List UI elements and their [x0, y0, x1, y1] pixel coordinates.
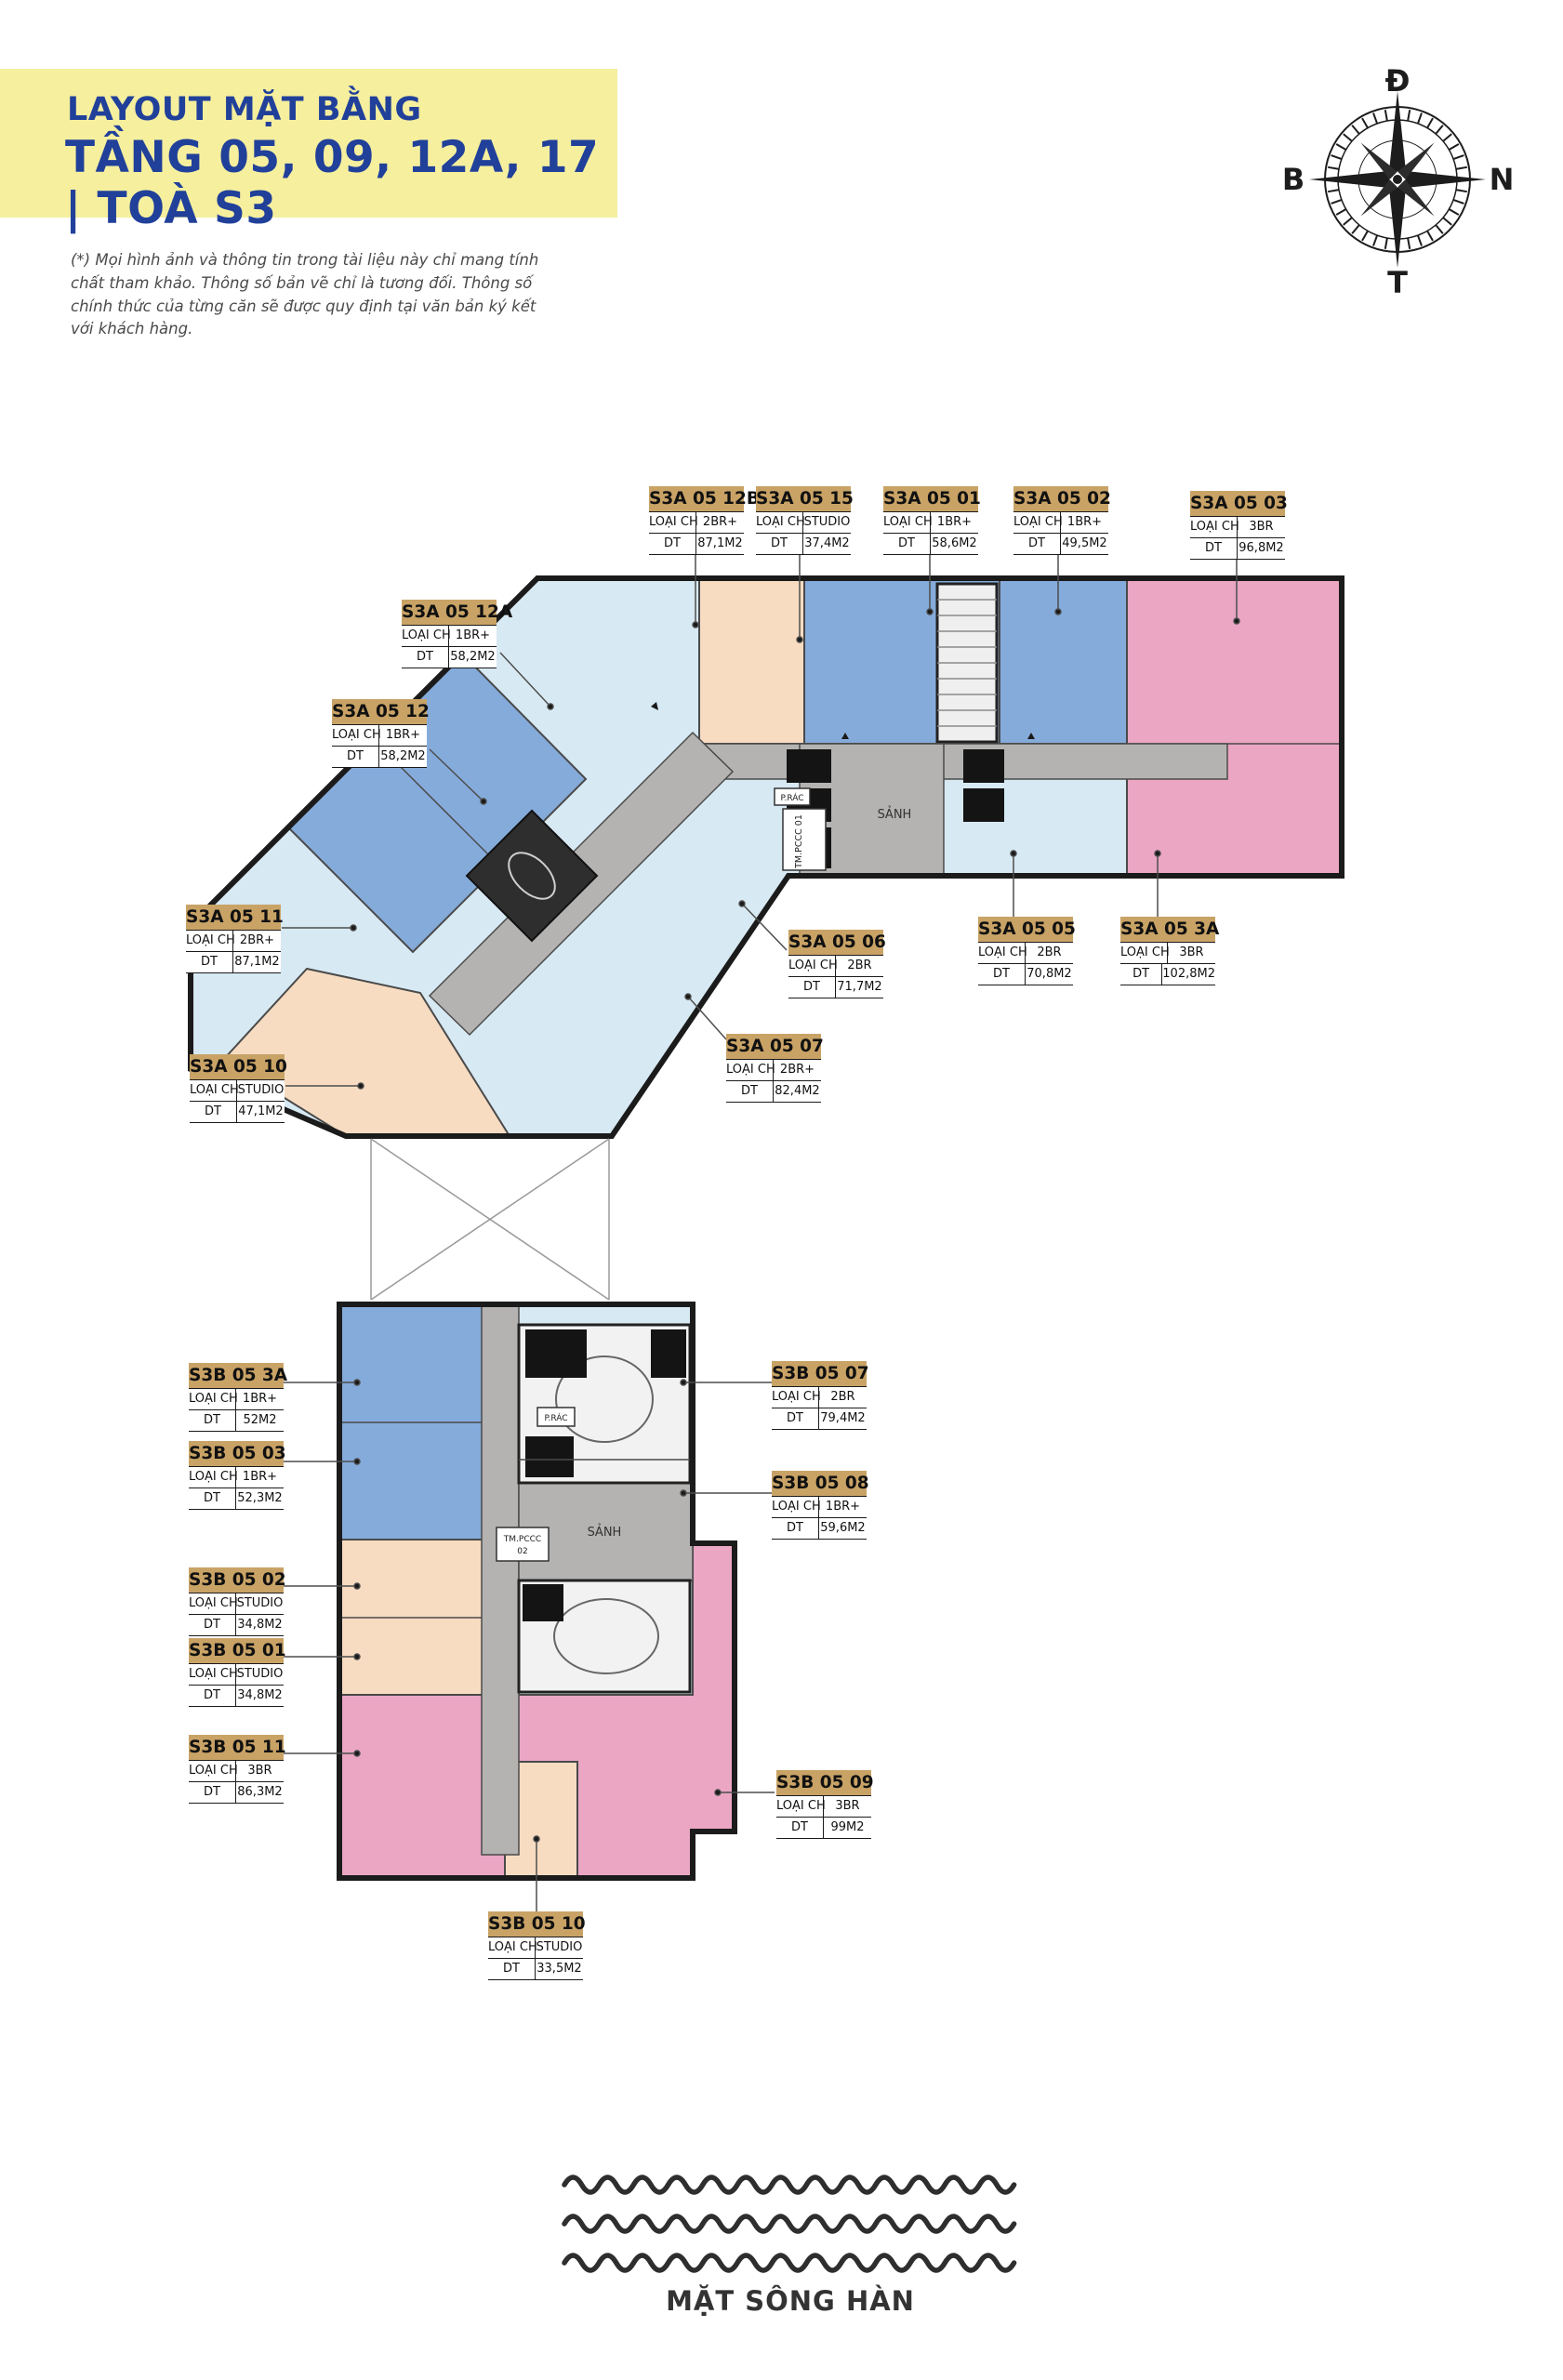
unit-area: 102,8M2: [1162, 964, 1215, 985]
type-field-label: LOẠI CH: [756, 512, 803, 533]
unit-area: 59,6M2: [819, 1518, 867, 1539]
unit-id: S3A 05 05: [978, 917, 1073, 942]
unit-label-s3b-05-01: S3B 05 01 LOẠI CHSTUDIO DT34,8M2: [189, 1638, 284, 1707]
unit-type: 1BR+: [449, 626, 497, 646]
unit-type: 1BR+: [1061, 512, 1108, 533]
unit-type: 2BR: [1026, 943, 1073, 963]
area-field-label: DT: [189, 1615, 236, 1635]
unit-area: 96,8M2: [1238, 538, 1285, 559]
unit-label-s3a-05-10: S3A 05 10 LOẠI CHSTUDIO DT47,1M2: [190, 1054, 285, 1123]
type-field-label: LOẠI CH: [772, 1387, 819, 1408]
unit-label-s3b-05-3a: S3B 05 3A LOẠI CH1BR+ DT52M2: [189, 1363, 284, 1432]
unit-area: 58,2M2: [379, 747, 427, 767]
type-field-label: LOẠI CH: [488, 1937, 536, 1958]
type-field-label: LOẠI CH: [190, 1080, 237, 1101]
unit-type: STUDIO: [237, 1080, 285, 1101]
unit-label-s3b-05-09: S3B 05 09 LOẠI CH3BR DT99M2: [776, 1770, 871, 1839]
s3b-lobby-label: SẢNH: [588, 1524, 622, 1540]
river-label: MẶT SÔNG HÀN: [564, 2285, 1016, 2317]
unit-type: STUDIO: [236, 1593, 284, 1614]
unit-area: 71,7M2: [836, 977, 883, 998]
area-field-label: DT: [776, 1818, 824, 1838]
unit-area: 99M2: [824, 1818, 871, 1838]
unit-id: S3A 05 03: [1190, 491, 1285, 516]
s3b-fire-room-label-line2: 02: [517, 1547, 527, 1556]
unit-id: S3B 05 07: [772, 1361, 867, 1386]
unit-area: 34,8M2: [236, 1615, 284, 1635]
unit-label-s3a-05-12a: S3A 05 12A LOẠI CH1BR+ DT58,2M2: [402, 600, 497, 668]
unit-type: 2BR: [819, 1387, 867, 1408]
unit-type: 2BR: [836, 956, 883, 976]
type-field-label: LOẠI CH: [776, 1796, 824, 1817]
unit-area: 70,8M2: [1026, 964, 1073, 985]
unit-type: STUDIO: [536, 1937, 583, 1958]
unit-label-s3a-05-12: S3A 05 12 LOẠI CH1BR+ DT58,2M2: [332, 699, 427, 768]
area-field-label: DT: [1013, 534, 1061, 554]
s3a-fire-room-label: TM.PCCC 01: [794, 814, 804, 869]
unit-area: 87,1M2: [233, 952, 281, 972]
unit-type: STUDIO: [236, 1664, 284, 1685]
unit-label-s3b-05-07: S3B 05 07 LOẠI CH2BR DT79,4M2: [772, 1361, 867, 1430]
unit-label-s3a-05-12b: S3A 05 12B LOẠI CH2BR+ DT87,1M2: [649, 486, 744, 555]
type-field-label: LOẠI CH: [189, 1664, 236, 1685]
area-field-label: DT: [402, 647, 449, 668]
unit-id: S3B 05 01: [189, 1638, 284, 1663]
s3a-unit-02: [1000, 578, 1127, 744]
unit-id: S3A 05 11: [186, 905, 281, 930]
unit-area: 47,1M2: [237, 1102, 285, 1122]
unit-id: S3A 05 15: [756, 486, 851, 511]
unit-id: S3A 05 07: [726, 1034, 821, 1059]
type-field-label: LOẠI CH: [726, 1060, 774, 1080]
area-field-label: DT: [978, 964, 1026, 985]
type-field-label: LOẠI CH: [772, 1497, 819, 1517]
s3a-fire-room: [783, 809, 826, 870]
type-field-label: LOẠI CH: [189, 1389, 236, 1409]
area-field-label: DT: [488, 1959, 536, 1979]
type-field-label: LOẠI CH: [1013, 512, 1061, 533]
type-field-label: LOẠI CH: [1190, 517, 1238, 537]
unit-label-s3a-05-15: S3A 05 15 LOẠI CHSTUDIO DT37,4M2: [756, 486, 851, 555]
unit-label-s3a-05-07: S3A 05 07 LOẠI CH2BR+ DT82,4M2: [726, 1034, 821, 1103]
unit-area: 49,5M2: [1061, 534, 1108, 554]
floorplan-drawing: Đ N T B: [0, 0, 1563, 2380]
compass-rose: Đ N T B: [1282, 63, 1515, 300]
type-field-label: LOẠI CH: [189, 1761, 236, 1781]
area-field-label: DT: [883, 534, 931, 554]
unit-area: 58,2M2: [449, 647, 497, 668]
unit-type: 1BR+: [819, 1497, 867, 1517]
unit-type: 3BR: [236, 1761, 284, 1781]
unit-label-s3a-05-11: S3A 05 11 LOẠI CH2BR+ DT87,1M2: [186, 905, 281, 973]
unit-label-s3a-05-3a: S3A 05 3A LOẠI CH3BR DT102,8M2: [1120, 917, 1215, 985]
unit-type: 2BR+: [233, 931, 281, 951]
unit-type: STUDIO: [803, 512, 851, 533]
type-field-label: LOẠI CH: [189, 1467, 236, 1487]
s3a-unit-15-studio: [699, 578, 804, 744]
compass-label-left: B: [1282, 162, 1305, 197]
type-field-label: LOẠI CH: [189, 1593, 236, 1614]
unit-area: 52,3M2: [236, 1488, 284, 1509]
type-field-label: LOẠI CH: [978, 943, 1026, 963]
unit-id: S3B 05 09: [776, 1770, 871, 1795]
type-field-label: LOẠI CH: [788, 956, 836, 976]
type-field-label: LOẠI CH: [649, 512, 696, 533]
area-field-label: DT: [772, 1518, 819, 1539]
s3a-lobby-label: SẢNH: [878, 806, 912, 822]
unit-type: 3BR: [1168, 943, 1215, 963]
unit-area: 34,8M2: [236, 1686, 284, 1706]
unit-type: 2BR+: [774, 1060, 821, 1080]
unit-label-s3b-05-08: S3B 05 08 LOẠI CH1BR+ DT59,6M2: [772, 1471, 867, 1540]
unit-label-s3a-05-06: S3A 05 06 LOẠI CH2BR DT71,7M2: [788, 930, 883, 998]
unit-area: 33,5M2: [536, 1959, 583, 1979]
unit-area: 79,4M2: [819, 1408, 867, 1429]
unit-area: 82,4M2: [774, 1081, 821, 1102]
compass-label-right: N: [1490, 162, 1515, 197]
area-field-label: DT: [649, 534, 696, 554]
area-field-label: DT: [189, 1410, 236, 1431]
unit-id: S3A 05 02: [1013, 486, 1108, 511]
unit-label-s3a-05-02: S3A 05 02 LOẠI CH1BR+ DT49,5M2: [1013, 486, 1108, 555]
unit-id: S3A 05 12B: [649, 486, 744, 511]
unit-area: 52M2: [236, 1410, 284, 1431]
unit-label-s3b-05-11: S3B 05 11 LOẠI CH3BR DT86,3M2: [189, 1735, 284, 1804]
unit-id: S3A 05 10: [190, 1054, 285, 1079]
unit-label-s3b-05-10: S3B 05 10 LOẠI CHSTUDIO DT33,5M2: [488, 1911, 583, 1980]
area-field-label: DT: [788, 977, 836, 998]
unit-type: 1BR+: [236, 1389, 284, 1409]
area-field-label: DT: [1190, 538, 1238, 559]
area-field-label: DT: [189, 1782, 236, 1803]
unit-type: 1BR+: [931, 512, 978, 533]
type-field-label: LOẠI CH: [883, 512, 931, 533]
unit-area: 37,4M2: [803, 534, 851, 554]
s3a-trash-room-label: P.RÁC: [780, 792, 803, 803]
unit-label-s3b-05-02: S3B 05 02 LOẠI CHSTUDIO DT34,8M2: [189, 1567, 284, 1636]
unit-type: 2BR+: [696, 512, 744, 533]
type-field-label: LOẠI CH: [1120, 943, 1168, 963]
tower-connector-lines: [371, 1139, 609, 1300]
s3b-trash-room-label: P.RÁC: [544, 1412, 567, 1423]
unit-id: S3A 05 01: [883, 486, 978, 511]
unit-id: S3B 05 02: [189, 1567, 284, 1593]
unit-id: S3B 05 11: [189, 1735, 284, 1760]
area-field-label: DT: [1120, 964, 1162, 985]
unit-id: S3A 05 12: [332, 699, 427, 724]
unit-label-s3a-05-01: S3A 05 01 LOẠI CH1BR+ DT58,6M2: [883, 486, 978, 555]
floorplan-page: LAYOUT MẶT BẰNG TẦNG 05, 09, 12A, 17 | T…: [0, 0, 1563, 2380]
unit-id: S3B 05 3A: [189, 1363, 284, 1388]
unit-type: 1BR+: [236, 1467, 284, 1487]
s3b-fire-room-label-line1: TM.PCCC: [503, 1535, 541, 1544]
river-waves: [564, 2177, 1014, 2270]
unit-id: S3B 05 08: [772, 1471, 867, 1496]
compass-star: [1309, 91, 1486, 268]
area-field-label: DT: [756, 534, 803, 554]
s3b-corridor: [482, 1304, 519, 1855]
area-field-label: DT: [332, 747, 379, 767]
unit-id: S3A 05 3A: [1120, 917, 1215, 942]
area-field-label: DT: [772, 1408, 819, 1429]
area-field-label: DT: [190, 1102, 237, 1122]
type-field-label: LOẠI CH: [186, 931, 233, 951]
area-field-label: DT: [189, 1686, 236, 1706]
unit-id: S3B 05 03: [189, 1441, 284, 1466]
unit-area: 87,1M2: [696, 534, 744, 554]
unit-label-s3a-05-03: S3A 05 03 LOẠI CH3BR DT96,8M2: [1190, 491, 1285, 560]
unit-id: S3A 05 06: [788, 930, 883, 955]
unit-area: 58,6M2: [931, 534, 978, 554]
compass-label-top: Đ: [1385, 63, 1411, 99]
tower-s3b: SẢNH P.RÁC TM.PCCC 02: [339, 1304, 735, 1878]
type-field-label: LOẠI CH: [402, 626, 449, 646]
unit-area: 86,3M2: [236, 1782, 284, 1803]
unit-id: S3B 05 10: [488, 1911, 583, 1937]
type-field-label: LOẠI CH: [332, 725, 379, 746]
unit-type: 3BR: [1238, 517, 1285, 537]
area-field-label: DT: [189, 1488, 236, 1509]
unit-id: S3A 05 12A: [402, 600, 497, 625]
compass-label-bottom: T: [1387, 265, 1408, 300]
area-field-label: DT: [186, 952, 233, 972]
area-field-label: DT: [726, 1081, 774, 1102]
unit-type: 3BR: [824, 1796, 871, 1817]
unit-label-s3a-05-05: S3A 05 05 LOẠI CH2BR DT70,8M2: [978, 917, 1073, 985]
unit-label-s3b-05-03: S3B 05 03 LOẠI CH1BR+ DT52,3M2: [189, 1441, 284, 1510]
unit-type: 1BR+: [379, 725, 427, 746]
